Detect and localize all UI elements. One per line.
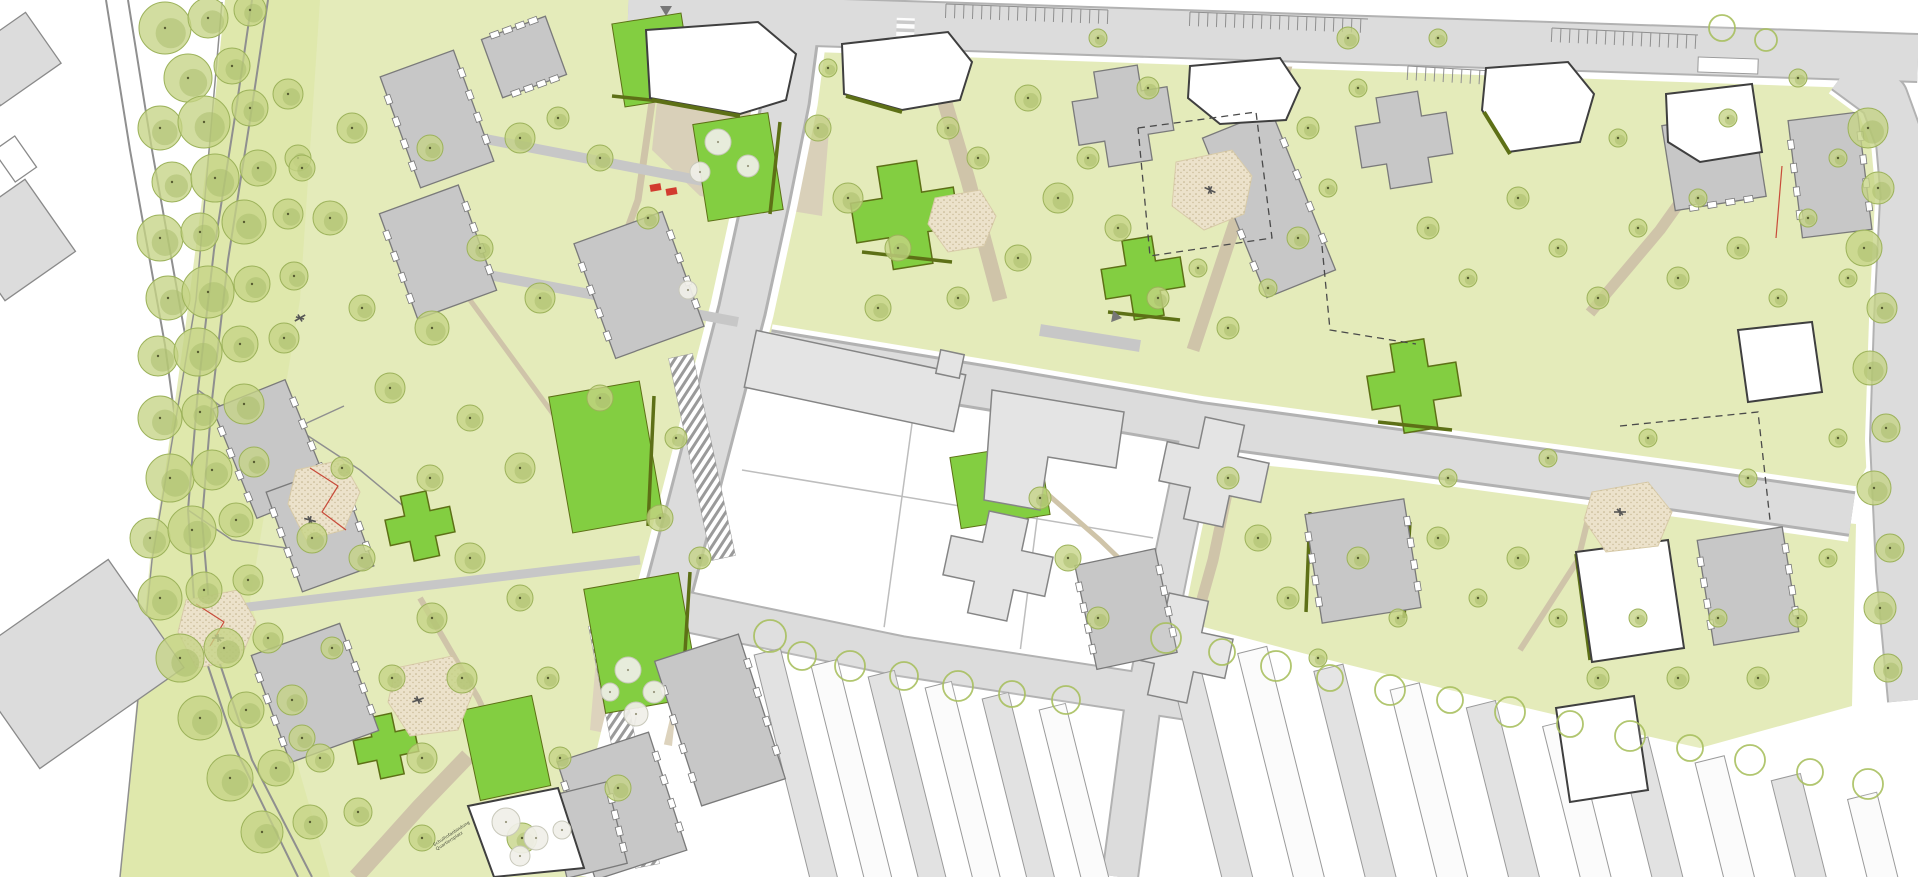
parking-stall-line	[1333, 18, 1334, 32]
tree-canopy	[1889, 547, 1891, 549]
tree-canopy	[287, 694, 304, 711]
tree-icon	[457, 405, 483, 431]
open-tree-icon	[943, 671, 973, 701]
tree-icon	[1667, 267, 1689, 289]
tree-canopy	[283, 337, 285, 339]
parking-stall-line	[1071, 9, 1072, 23]
tree-canopy	[1881, 423, 1897, 439]
tree-icon	[417, 465, 443, 491]
tree-icon	[239, 447, 269, 477]
tree-center-dot	[699, 171, 701, 173]
tree-canopy	[465, 413, 480, 428]
balcony-notch	[1156, 565, 1164, 575]
tree-canopy	[873, 303, 888, 318]
tree-icon	[156, 634, 204, 682]
tree-canopy	[324, 212, 344, 232]
parking-stall-line	[1596, 30, 1597, 44]
tree-icon	[1427, 527, 1449, 549]
tree-icon	[833, 183, 863, 213]
tree-canopy	[475, 243, 490, 258]
parking-stall-line	[990, 6, 991, 20]
tree-icon	[1287, 227, 1309, 249]
tree-icon	[1872, 414, 1900, 442]
parking-stall-line	[1008, 6, 1009, 20]
tree-canopy	[1063, 553, 1078, 568]
tree-canopy	[152, 590, 178, 616]
tree-canopy	[599, 397, 601, 399]
tree-canopy	[385, 382, 402, 399]
tree-canopy	[1695, 195, 1705, 205]
tree-canopy	[1777, 297, 1779, 299]
tree-canopy	[391, 677, 393, 679]
balcony-notch	[1080, 603, 1088, 613]
tree-icon	[1629, 609, 1647, 627]
tree-canopy	[1873, 487, 1875, 489]
tree-canopy	[1727, 117, 1729, 119]
tree-icon	[277, 685, 307, 715]
tree-canopy	[1645, 435, 1655, 445]
building-new-1	[646, 22, 796, 114]
tree-icon	[1639, 429, 1657, 447]
tree-canopy	[183, 521, 211, 549]
parking-stall-line	[999, 6, 1000, 20]
tree-canopy	[223, 647, 225, 649]
tree-icon	[178, 96, 230, 148]
site-plan-drawing	[0, 0, 1918, 877]
parking-stall-line	[1297, 16, 1298, 30]
tree-icon	[232, 90, 268, 126]
building-new-7	[1576, 540, 1684, 662]
tree-canopy	[1797, 77, 1799, 79]
tree-icon	[168, 506, 216, 554]
open-tree-icon	[1709, 15, 1735, 41]
tree-canopy	[1397, 617, 1399, 619]
parking-stall-line	[981, 5, 982, 19]
open-tree-icon	[1853, 769, 1883, 799]
tree-canopy	[1514, 194, 1527, 207]
tree-canopy	[1617, 137, 1619, 139]
balcony-notch	[1411, 560, 1418, 570]
tree-canopy	[231, 65, 233, 67]
tree-icon	[587, 145, 613, 171]
open-tree-icon	[754, 620, 786, 652]
tree-canopy	[1084, 154, 1097, 167]
tree-canopy	[1154, 294, 1167, 307]
tree-icon	[1739, 469, 1757, 487]
tree-canopy	[417, 752, 434, 769]
tree-canopy	[877, 307, 879, 309]
tree-canopy	[557, 117, 559, 119]
tree-canopy	[827, 67, 829, 69]
tree-canopy	[328, 644, 341, 657]
tree-icon	[138, 576, 182, 620]
tree-canopy	[479, 247, 481, 249]
tree-icon	[222, 326, 258, 362]
tree-canopy	[425, 473, 440, 488]
tree-canopy	[1095, 35, 1105, 45]
tree-canopy	[1597, 297, 1599, 299]
plaza-tree-icon	[624, 702, 648, 726]
plaza-tree-icon	[524, 826, 548, 850]
parking-stall-line	[1098, 10, 1099, 24]
tree-icon	[1819, 549, 1837, 567]
tree-icon	[947, 287, 969, 309]
tree-canopy	[425, 143, 440, 158]
tree-canopy	[1027, 97, 1029, 99]
tree-canopy	[1395, 615, 1405, 625]
tree-icon	[1259, 279, 1277, 297]
tree-icon	[234, 266, 270, 302]
tree-canopy	[1475, 595, 1485, 605]
plaza-tree-icon	[705, 129, 731, 155]
tree-icon	[1867, 293, 1897, 323]
tree-canopy	[1775, 295, 1785, 305]
tree-canopy	[644, 214, 657, 227]
tree-canopy	[1825, 555, 1835, 565]
tree-canopy	[1594, 294, 1607, 307]
parking-stall-line	[1668, 34, 1669, 48]
tree-canopy	[205, 462, 228, 485]
tree-canopy	[1039, 497, 1041, 499]
tree-canopy	[1013, 253, 1028, 268]
tree-canopy	[469, 557, 471, 559]
tree-icon	[1846, 230, 1882, 266]
tree-icon	[181, 213, 219, 251]
tree-icon	[1829, 429, 1847, 447]
parking-stall-line	[1035, 7, 1036, 21]
tree-canopy	[1224, 474, 1237, 487]
tree-canopy	[301, 167, 303, 169]
tree-canopy	[1144, 84, 1157, 97]
tree-icon	[188, 0, 228, 38]
tree-canopy	[429, 477, 431, 479]
tree-canopy	[954, 294, 967, 307]
tree-canopy	[469, 417, 471, 419]
tree-canopy	[179, 69, 207, 97]
tree-icon	[178, 696, 222, 740]
tree-icon	[1055, 545, 1081, 571]
tree-icon	[1389, 609, 1407, 627]
tree-canopy	[191, 529, 193, 531]
tree-canopy	[234, 337, 255, 358]
tree-canopy	[152, 120, 178, 146]
tree-canopy	[159, 417, 161, 419]
tree-canopy	[240, 703, 261, 724]
tree-canopy	[291, 699, 293, 701]
tree-icon	[1087, 607, 1109, 629]
tree-canopy	[1017, 257, 1019, 259]
tree-icon	[1853, 351, 1887, 385]
tree-canopy	[1514, 554, 1527, 567]
parking-stall-line	[972, 5, 973, 19]
tree-canopy	[214, 177, 216, 179]
tree-canopy	[207, 17, 209, 19]
balcony-notch	[1785, 564, 1792, 574]
tree-canopy	[675, 437, 677, 439]
tree-canopy	[1872, 182, 1891, 201]
tree-canopy	[1867, 127, 1869, 129]
plaza-tree-icon	[690, 162, 710, 182]
tree-canopy	[341, 467, 343, 469]
tree-canopy	[1881, 307, 1883, 309]
tree-canopy	[249, 107, 251, 109]
tree-icon	[417, 603, 447, 633]
tree-icon	[138, 336, 178, 376]
road-right	[1896, 200, 1914, 700]
tree-center-dot	[687, 289, 689, 291]
tree-canopy	[249, 9, 251, 11]
tree-canopy	[1547, 457, 1549, 459]
tree-canopy	[152, 229, 179, 256]
parking-stall-line	[1569, 29, 1570, 43]
tree-canopy	[1447, 477, 1449, 479]
parking-stall-line	[1288, 16, 1289, 30]
tree-icon	[1857, 471, 1891, 505]
tree-icon	[665, 427, 687, 449]
tree-canopy	[1647, 437, 1649, 439]
tree-icon	[182, 266, 234, 318]
tree-icon	[1077, 147, 1099, 169]
tree-canopy	[261, 831, 263, 833]
tree-canopy	[1354, 554, 1367, 567]
balcony-notch	[1305, 532, 1312, 542]
tree-icon	[138, 396, 182, 440]
tree-canopy	[947, 127, 949, 129]
tree-icon	[1417, 217, 1439, 239]
tree-icon	[1217, 317, 1239, 339]
tree-canopy	[1357, 87, 1359, 89]
tree-canopy	[1267, 287, 1269, 289]
tree-canopy	[461, 677, 463, 679]
tree-canopy	[246, 277, 267, 298]
balcony-notch	[1308, 554, 1315, 564]
tree-canopy	[189, 343, 217, 371]
tree-canopy	[1805, 215, 1815, 225]
tree-icon	[1245, 525, 1271, 551]
tree-canopy	[1697, 197, 1699, 199]
open-tree-icon	[788, 642, 816, 670]
parking-stall-line	[1107, 10, 1108, 24]
tree-canopy	[199, 231, 201, 233]
tree-icon	[647, 505, 673, 531]
tree-icon	[1719, 109, 1737, 127]
tree-canopy	[595, 153, 610, 168]
parking-stall-line	[1686, 34, 1687, 48]
tree-canopy	[897, 247, 899, 249]
tree-canopy	[353, 807, 369, 823]
tree-canopy	[1053, 192, 1070, 209]
tree-icon	[234, 0, 266, 26]
balcony-notch	[1315, 597, 1322, 607]
tree-canopy	[171, 181, 173, 183]
tree-canopy	[431, 617, 433, 619]
parking-stall-line	[1261, 15, 1262, 29]
tree-canopy	[239, 343, 241, 345]
tree-icon	[1347, 547, 1369, 569]
tree-canopy	[287, 213, 289, 215]
tree-canopy	[164, 27, 166, 29]
tree-canopy	[1265, 285, 1275, 295]
tree-icon	[605, 775, 631, 801]
tree-canopy	[171, 649, 199, 677]
tree-icon	[1789, 609, 1807, 627]
tree-icon	[258, 750, 294, 786]
tree-icon	[273, 79, 303, 109]
tree-icon	[1005, 245, 1031, 271]
tree-canopy	[203, 589, 205, 591]
tree-icon	[1507, 547, 1529, 569]
tree-canopy	[156, 18, 186, 48]
tree-canopy	[207, 291, 209, 293]
tree-canopy	[1674, 274, 1687, 287]
open-tree-icon	[1735, 745, 1765, 775]
tree-canopy	[311, 537, 313, 539]
tree-canopy	[1637, 227, 1639, 229]
tree-canopy	[429, 147, 431, 149]
balcony-notch	[1089, 644, 1097, 654]
tree-canopy	[426, 322, 446, 342]
tree-canopy	[1883, 663, 1899, 679]
tree-canopy	[283, 88, 300, 105]
parking-stall-line	[1216, 13, 1217, 27]
plaza-tree-icon	[643, 681, 665, 703]
parking-stall-line	[1189, 12, 1190, 26]
parking-stall-line	[1062, 8, 1063, 22]
tree-canopy	[222, 769, 249, 796]
tree-canopy	[361, 307, 363, 309]
tree-canopy	[421, 837, 423, 839]
tree-canopy	[1117, 227, 1119, 229]
tree-icon	[1747, 667, 1769, 689]
site-plan-canvas: Schulhofanbindung Quartiersplatz	[0, 0, 1918, 877]
plaza-tree-icon	[615, 657, 641, 683]
open-tree-icon	[1375, 675, 1405, 705]
tree-canopy	[1845, 275, 1855, 285]
tree-icon	[689, 547, 711, 569]
tree-canopy	[161, 469, 189, 497]
open-tree-icon	[999, 681, 1025, 707]
tree-canopy	[287, 93, 289, 95]
parking-stall-line	[1243, 14, 1244, 28]
balcony-notch	[1789, 585, 1796, 595]
tree-canopy	[169, 477, 171, 479]
tree-icon	[186, 572, 222, 608]
tree-canopy	[944, 124, 957, 137]
tree-icon	[1277, 587, 1299, 609]
balcony-notch	[1076, 582, 1084, 592]
tree-icon	[241, 811, 283, 853]
tree-canopy	[159, 237, 161, 239]
tree-icon	[1609, 129, 1627, 147]
tree-canopy	[613, 783, 628, 798]
tree-canopy	[1227, 327, 1229, 329]
tree-canopy	[595, 393, 610, 408]
tree-canopy	[283, 208, 300, 225]
balcony-notch	[1790, 163, 1797, 173]
tree-canopy	[974, 154, 987, 167]
tree-icon	[1862, 172, 1894, 204]
tree-canopy	[539, 297, 541, 299]
tree-icon	[293, 805, 327, 839]
tree-icon	[1848, 108, 1888, 148]
tree-canopy	[1879, 607, 1881, 609]
tree-canopy	[1327, 187, 1329, 189]
parking-stall-line	[1225, 13, 1226, 27]
balcony-notch	[1782, 543, 1789, 553]
tree-icon	[1043, 183, 1073, 213]
tree-canopy	[1094, 614, 1107, 627]
tree-icon	[152, 162, 192, 202]
tree-icon	[1147, 287, 1169, 309]
balcony-notch	[1407, 538, 1414, 548]
tree-canopy	[293, 275, 295, 277]
balcony-notch	[1404, 516, 1411, 526]
tree-canopy	[519, 137, 521, 139]
tree-canopy	[519, 597, 521, 599]
tree-center-dot	[535, 837, 537, 839]
tree-canopy	[201, 10, 224, 33]
balcony-notch	[1704, 599, 1711, 609]
tree-icon	[280, 262, 308, 290]
tree-canopy	[813, 123, 828, 138]
tree-icon	[222, 200, 266, 244]
parking-stall-line	[1632, 32, 1633, 46]
tree-canopy	[270, 761, 291, 782]
open-tree-icon	[1557, 711, 1583, 737]
tree-icon	[1439, 469, 1457, 487]
tree-icon	[1876, 534, 1904, 562]
tree-canopy	[167, 297, 169, 299]
tree-center-dot	[635, 713, 637, 715]
tree-icon	[865, 295, 891, 321]
tree-canopy	[143, 530, 166, 553]
tree-canopy	[893, 243, 908, 258]
plaza-tree-icon	[737, 155, 759, 177]
parking-stall-line	[1614, 31, 1615, 45]
tree-icon	[1089, 29, 1107, 47]
tree-canopy	[847, 197, 849, 199]
tree-icon	[819, 59, 837, 77]
tree-canopy	[159, 597, 161, 599]
tree-canopy	[1745, 475, 1755, 485]
tree-canopy	[1795, 615, 1805, 625]
tree-canopy	[1294, 234, 1307, 247]
tree-icon	[1629, 219, 1647, 237]
tree-icon	[224, 384, 264, 424]
tree-canopy	[1837, 437, 1839, 439]
tree-canopy	[1477, 597, 1479, 599]
parking-stall-line	[1089, 9, 1090, 23]
tree-canopy	[187, 77, 189, 79]
parking-stall-line	[1279, 16, 1280, 30]
tree-icon	[505, 123, 535, 153]
tree-icon	[467, 235, 493, 261]
plan-layers	[0, 0, 1918, 877]
open-tree-icon	[1755, 29, 1777, 51]
tree-icon	[455, 543, 485, 573]
tree-canopy	[1347, 37, 1349, 39]
tree-canopy	[1885, 427, 1887, 429]
tree-center-dot	[747, 165, 749, 167]
parking-stall-line	[1198, 12, 1199, 26]
tree-canopy	[1227, 477, 1229, 479]
tree-canopy	[521, 837, 523, 839]
tree-icon	[192, 450, 232, 490]
tree-canopy	[309, 821, 311, 823]
balcony-notch	[1414, 581, 1421, 591]
plaza-tree-icon	[492, 808, 520, 836]
tree-icon	[1864, 592, 1896, 624]
